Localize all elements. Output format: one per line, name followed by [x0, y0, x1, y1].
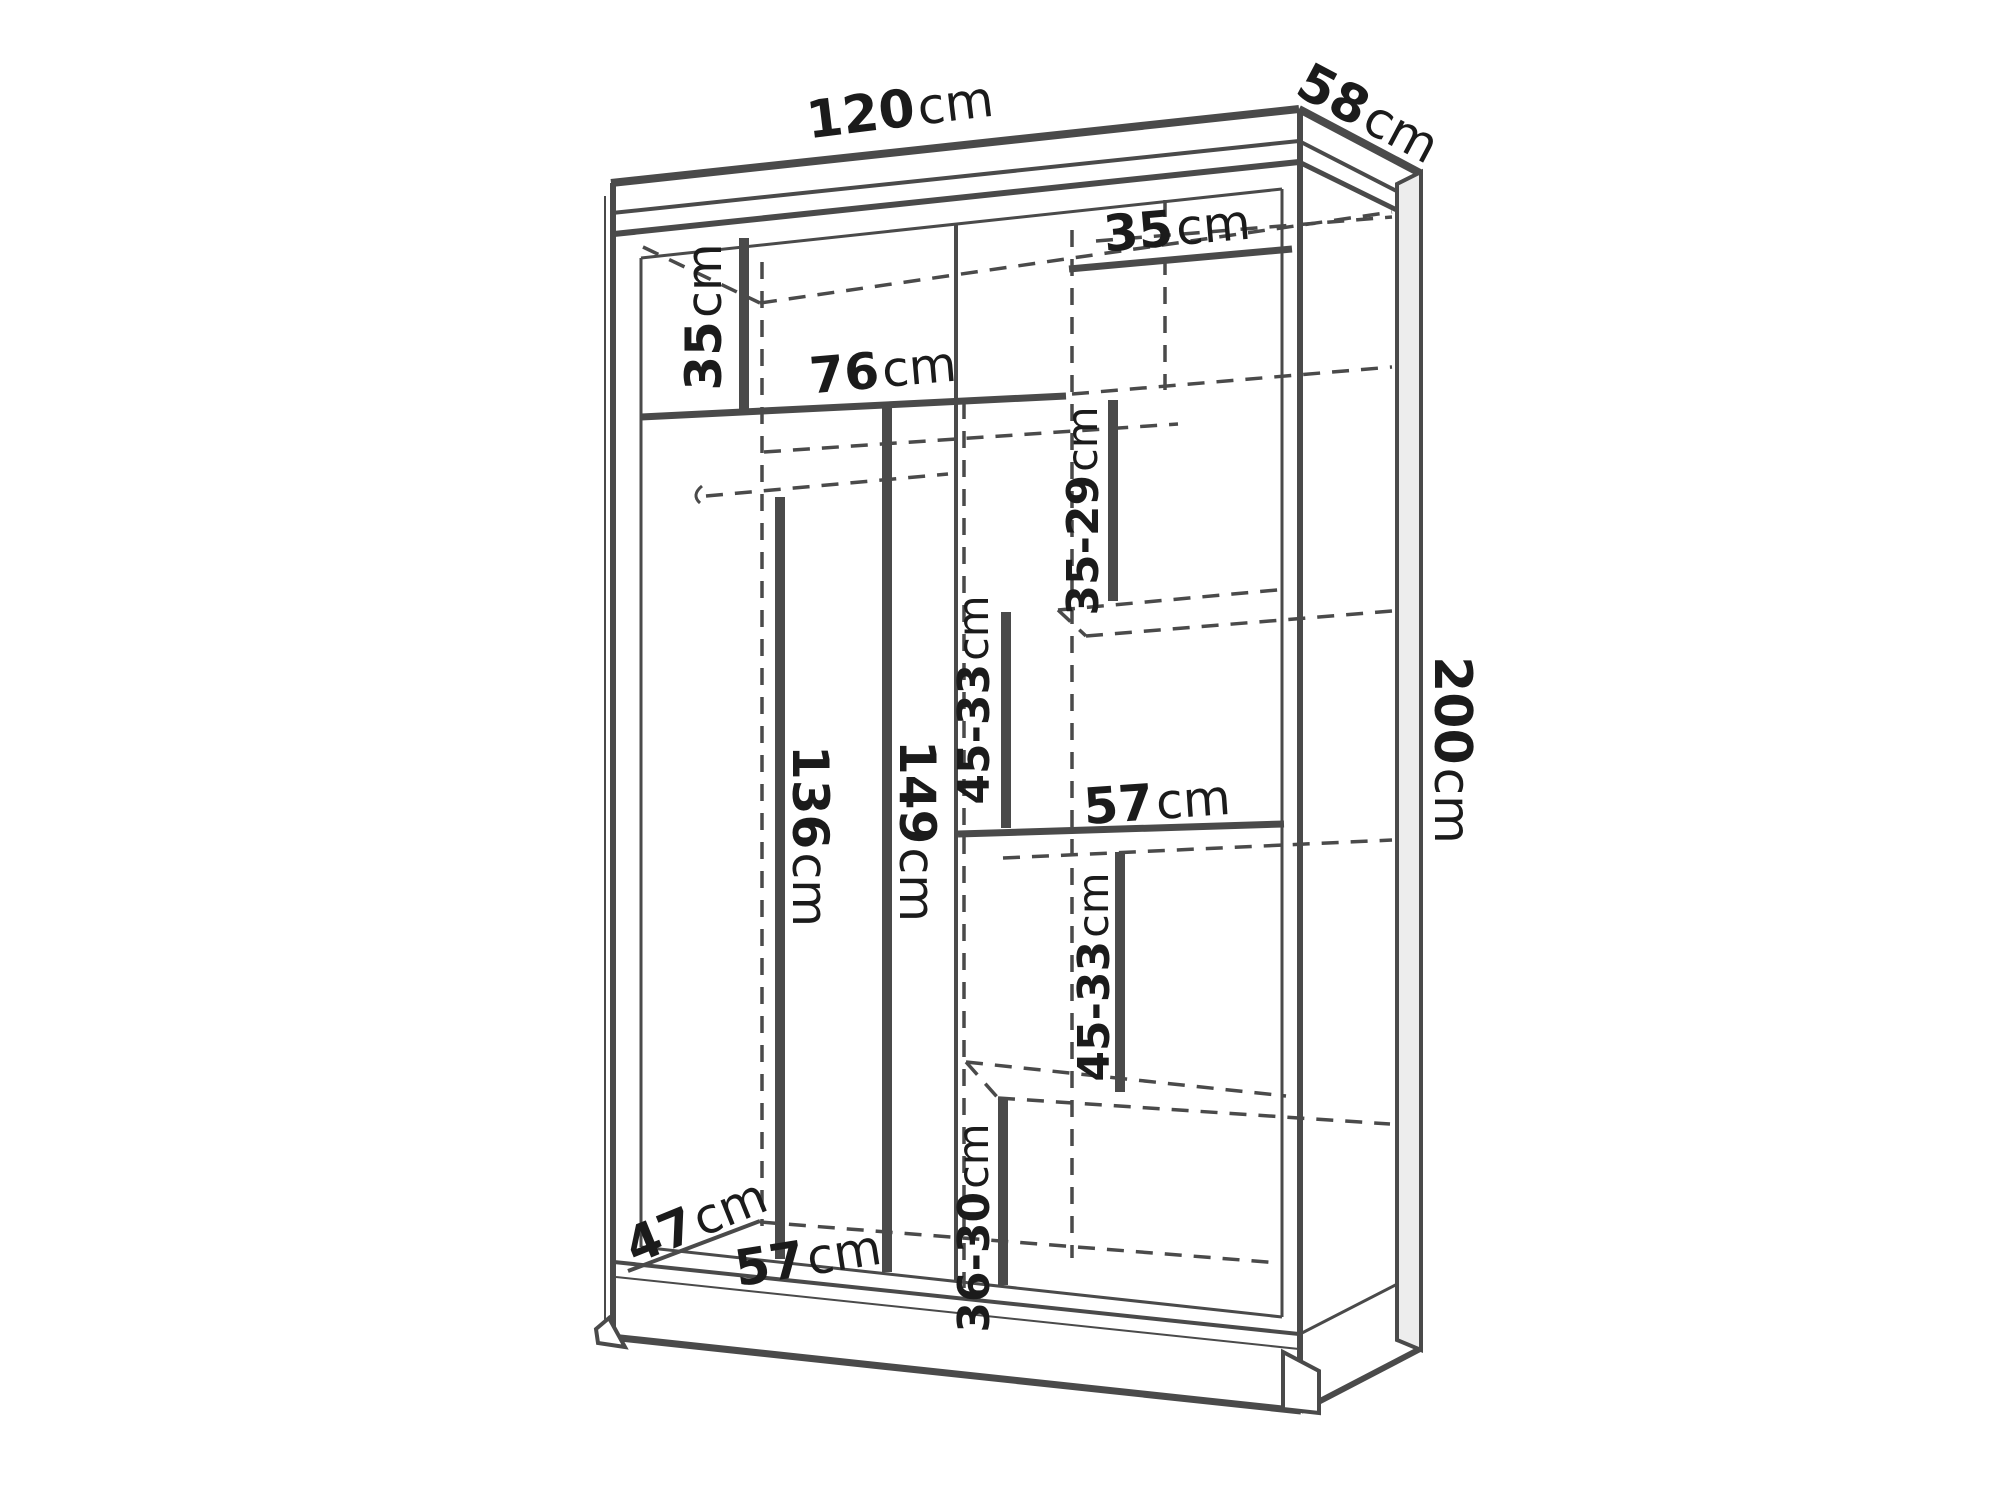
- wardrobe-dimension-diagram-page: 120cm58cm200cm35cm76cm35cm35-29cm45-33cm…: [0, 0, 2000, 1500]
- hanging-rod-hook: [696, 486, 702, 503]
- dimension-label-right-bottom-compartment-height: 36-30cm: [949, 1123, 1000, 1332]
- dimension-label-right-middle-upper-compartment-height: 45-33cm: [949, 595, 1000, 804]
- dimension-label-left-section-width: 76cm: [807, 335, 959, 406]
- side-panel-back-edge: [1397, 172, 1421, 1350]
- hanging-rod: [706, 474, 948, 496]
- dimension-label-left-interior-height: 149cm: [888, 740, 946, 922]
- dimension-label-overall-height: 200cm: [1422, 656, 1482, 844]
- dimension-label-top-left-compartment-height: 35cm: [675, 243, 733, 390]
- dashed-depth-lines: [643, 200, 1392, 1288]
- dimension-label-right-middle-lower-compartment-height: 45-33cm: [1069, 872, 1120, 1081]
- dimension-label-left-hanging-height: 136cm: [781, 745, 839, 927]
- dimension-label-right-upper-compartment-height: 35-29cm: [1058, 406, 1109, 615]
- dimension-label-overall-width: 120cm: [803, 69, 997, 151]
- left-foot: [596, 1318, 625, 1347]
- right-foot: [1283, 1352, 1319, 1413]
- wardrobe-diagram: 120cm58cm200cm35cm76cm35cm35-29cm45-33cm…: [0, 0, 2000, 1500]
- dimension-label-right-shelf-width: 57cm: [1082, 768, 1233, 836]
- dimension-label-overall-depth: 58cm: [1287, 52, 1449, 176]
